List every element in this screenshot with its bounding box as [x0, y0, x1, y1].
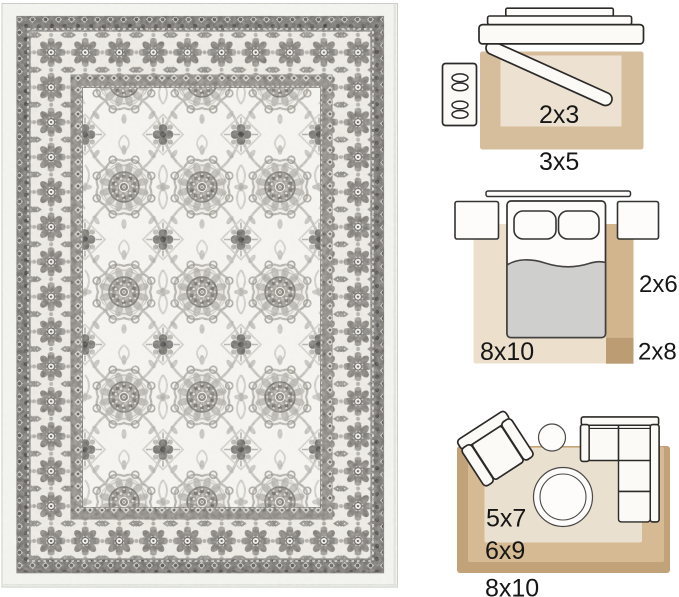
svg-text:6x9: 6x9	[485, 537, 525, 565]
svg-text:8x10: 8x10	[485, 575, 539, 597]
svg-text:2x3: 2x3	[539, 101, 579, 129]
svg-text:5x7: 5x7	[486, 505, 526, 533]
svg-text:3x5: 3x5	[539, 148, 579, 176]
svg-text:8x10: 8x10	[480, 338, 534, 366]
svg-text:2x8: 2x8	[638, 339, 677, 366]
svg-text:2x6: 2x6	[639, 271, 678, 298]
